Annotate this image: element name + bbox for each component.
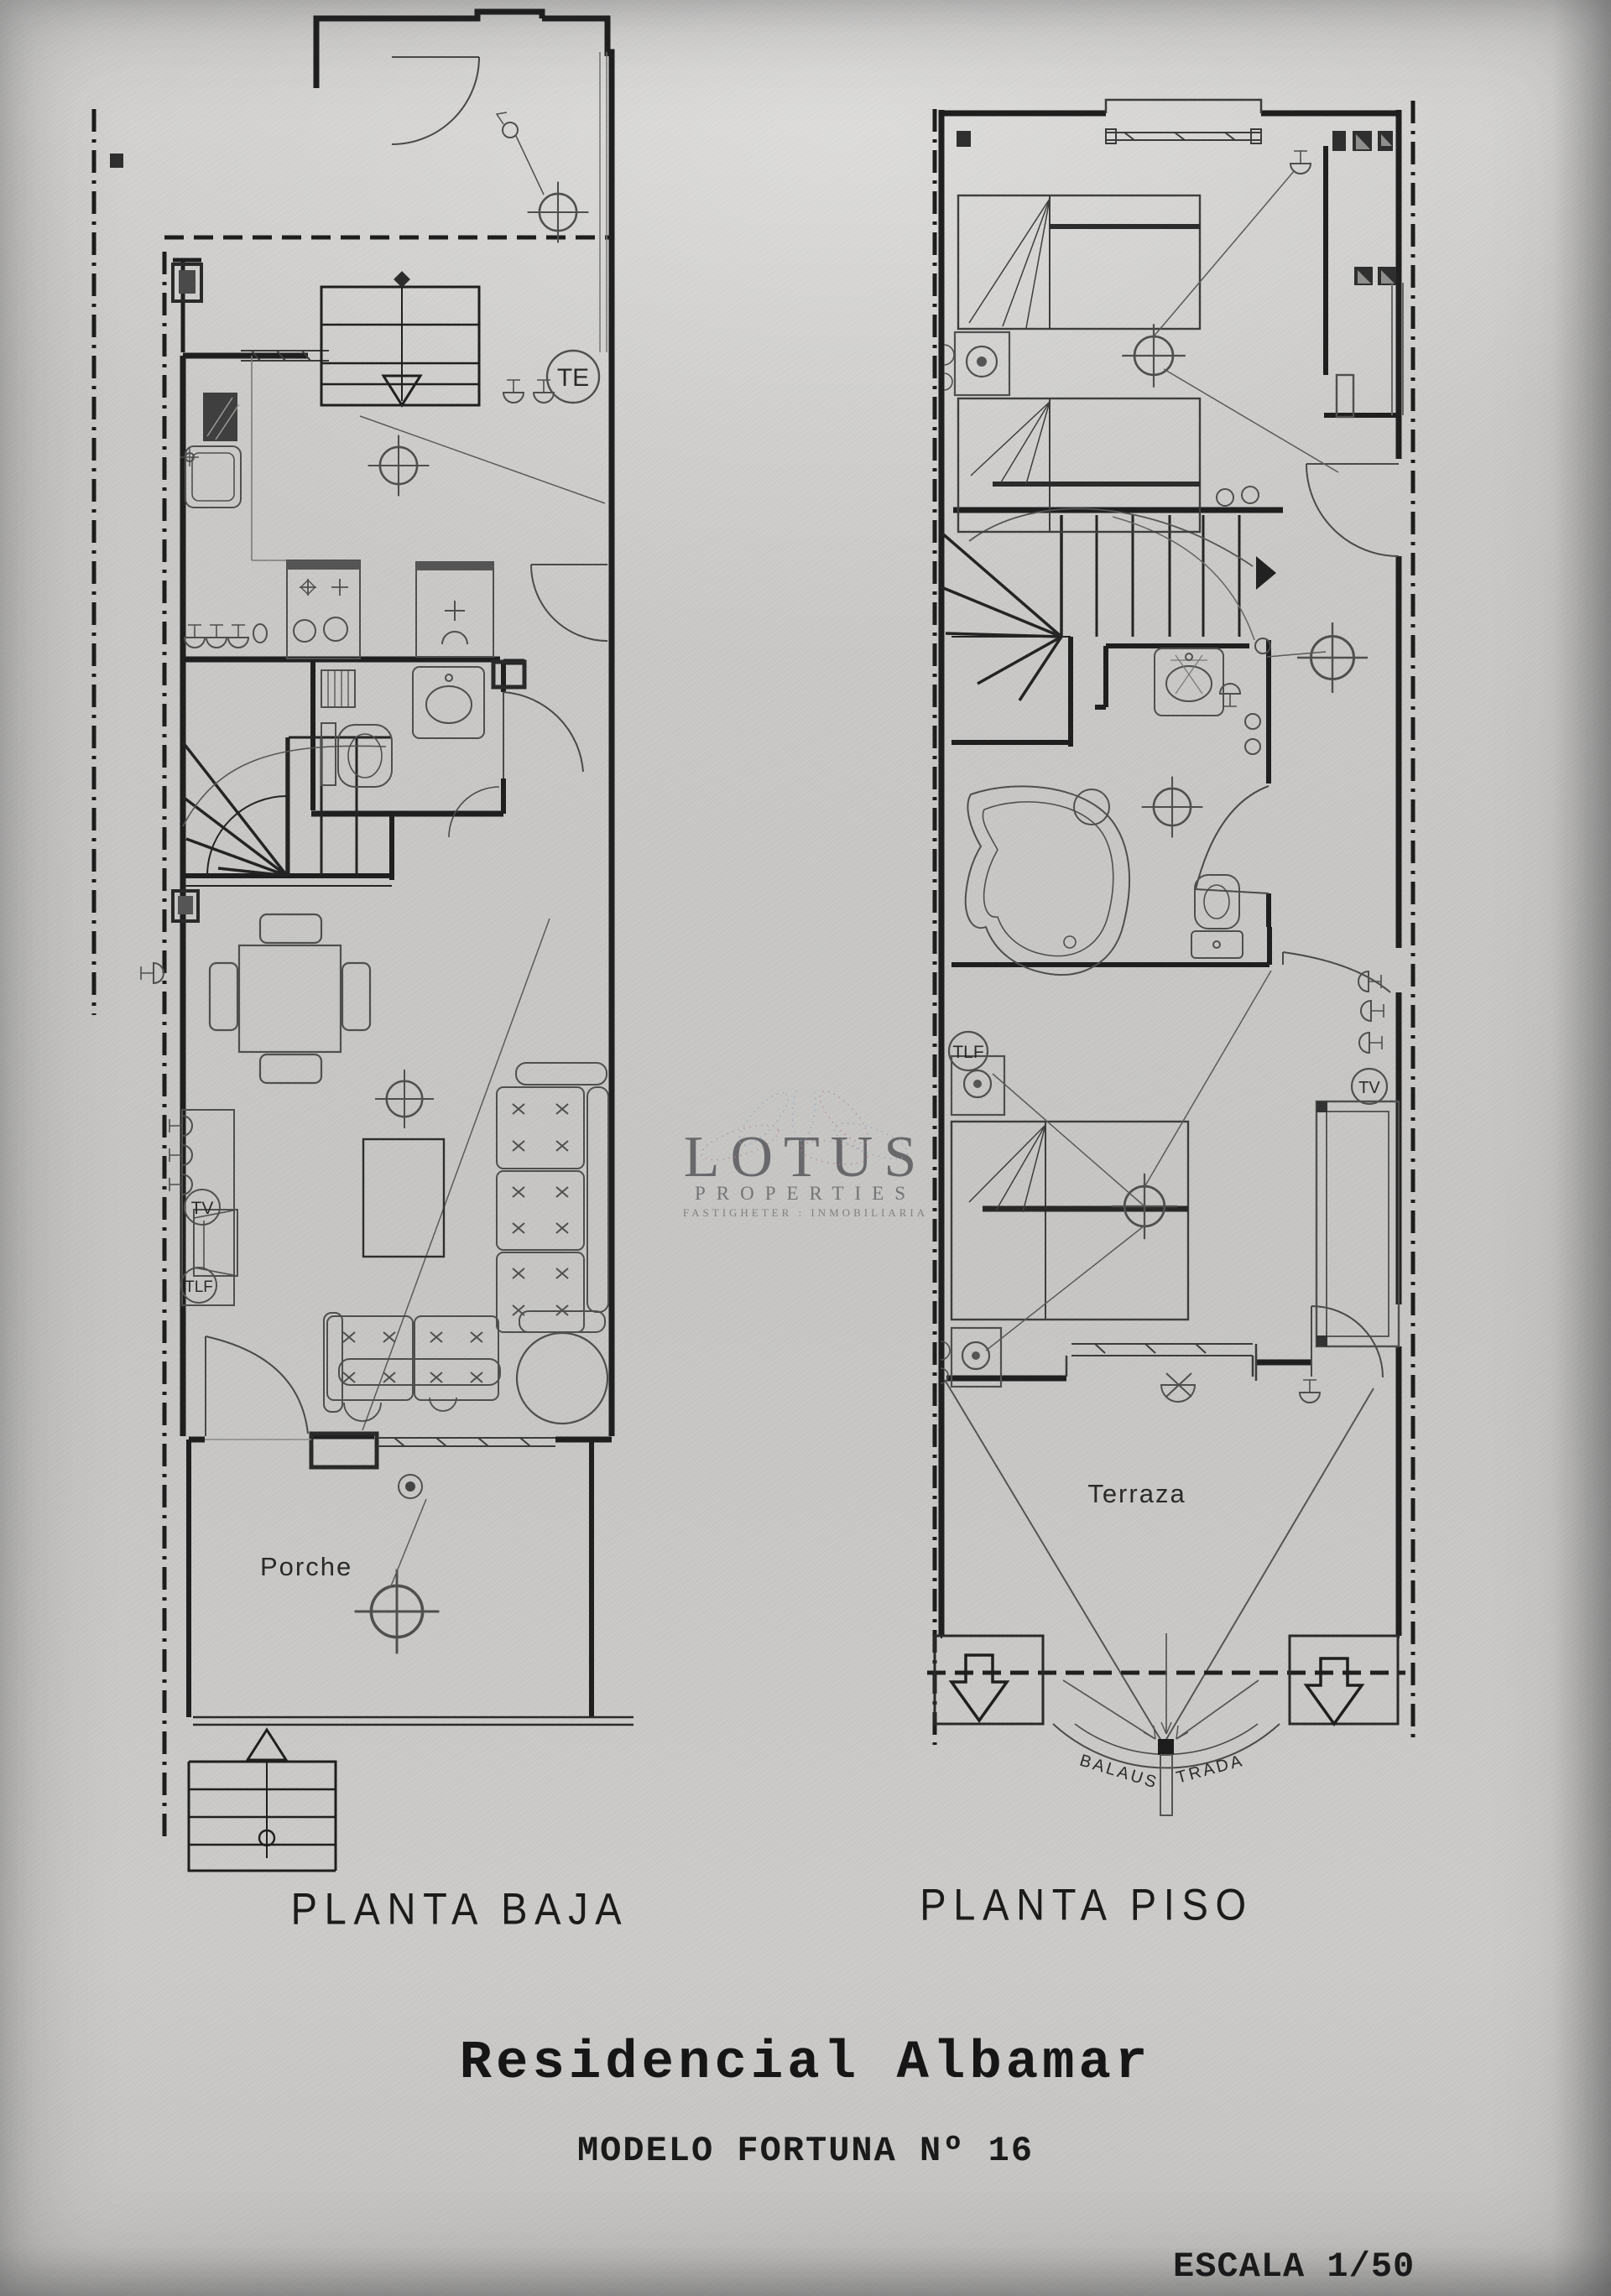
walls-ground-floor <box>173 12 612 1717</box>
model-title: MODELO FORTUNA Nº 16 <box>0 2131 1611 2171</box>
closet-top <box>1337 375 1353 417</box>
te-label: TE <box>557 364 589 392</box>
wall-details-upper <box>957 131 1396 285</box>
nightstands-lower <box>941 1056 1004 1387</box>
exterior-steps <box>189 1730 336 1871</box>
planta-piso-drawing: TLF TV Terraza BALAUS TRADA <box>919 96 1431 1837</box>
twin-beds <box>958 195 1200 532</box>
dining-table-set <box>210 914 370 1083</box>
electrical-symbols-ground <box>141 112 605 1653</box>
porch-label: Porche <box>260 1552 352 1581</box>
tlf-label-ground: TLF <box>185 1278 213 1296</box>
doors-upper-floor <box>1196 464 1399 1377</box>
double-bed <box>951 1122 1188 1320</box>
terrace <box>927 1380 1405 1815</box>
lotus-petals-icon <box>663 1091 948 1168</box>
sofa-corner-group <box>324 1063 608 1421</box>
tlf-label-upper: TLF <box>952 1043 983 1062</box>
entry-steps <box>321 271 479 405</box>
balustrade-label-right: TRADA <box>1175 1752 1247 1788</box>
round-side-table <box>517 1333 607 1424</box>
planta-baja-drawing: TV TLF Porche <box>80 0 650 1883</box>
windows-upper <box>1066 100 1403 1381</box>
balustrade-label-left: BALAUS <box>1077 1752 1160 1793</box>
upper-staircase <box>941 508 1276 700</box>
page-edge-shadow-right <box>1552 0 1611 2296</box>
scanned-floorplan-sheet: TV TLF Porche <box>0 0 1611 2296</box>
caption-planta-baja: PLANTA BAJA <box>218 1884 701 1934</box>
terrace-label: Terraza <box>1087 1479 1186 1508</box>
caption-planta-piso: PLANTA PISO <box>845 1880 1328 1930</box>
wardrobe-lower <box>1316 1101 1399 1346</box>
kitchen-fixtures <box>180 356 493 659</box>
tv-label-ground: TV <box>191 1199 214 1218</box>
project-title: Residencial Albamar <box>0 2033 1611 2094</box>
scale-note: ESCALA 1/50 <box>1173 2247 1415 2287</box>
wc-fixtures <box>321 667 484 787</box>
doors-ground-floor <box>206 57 607 1436</box>
lot-boundary-lines-left <box>94 109 612 1841</box>
windows-ground-floor <box>205 351 555 1446</box>
tv-label-upper: TV <box>1358 1079 1380 1097</box>
nightstand-top <box>944 332 1009 395</box>
